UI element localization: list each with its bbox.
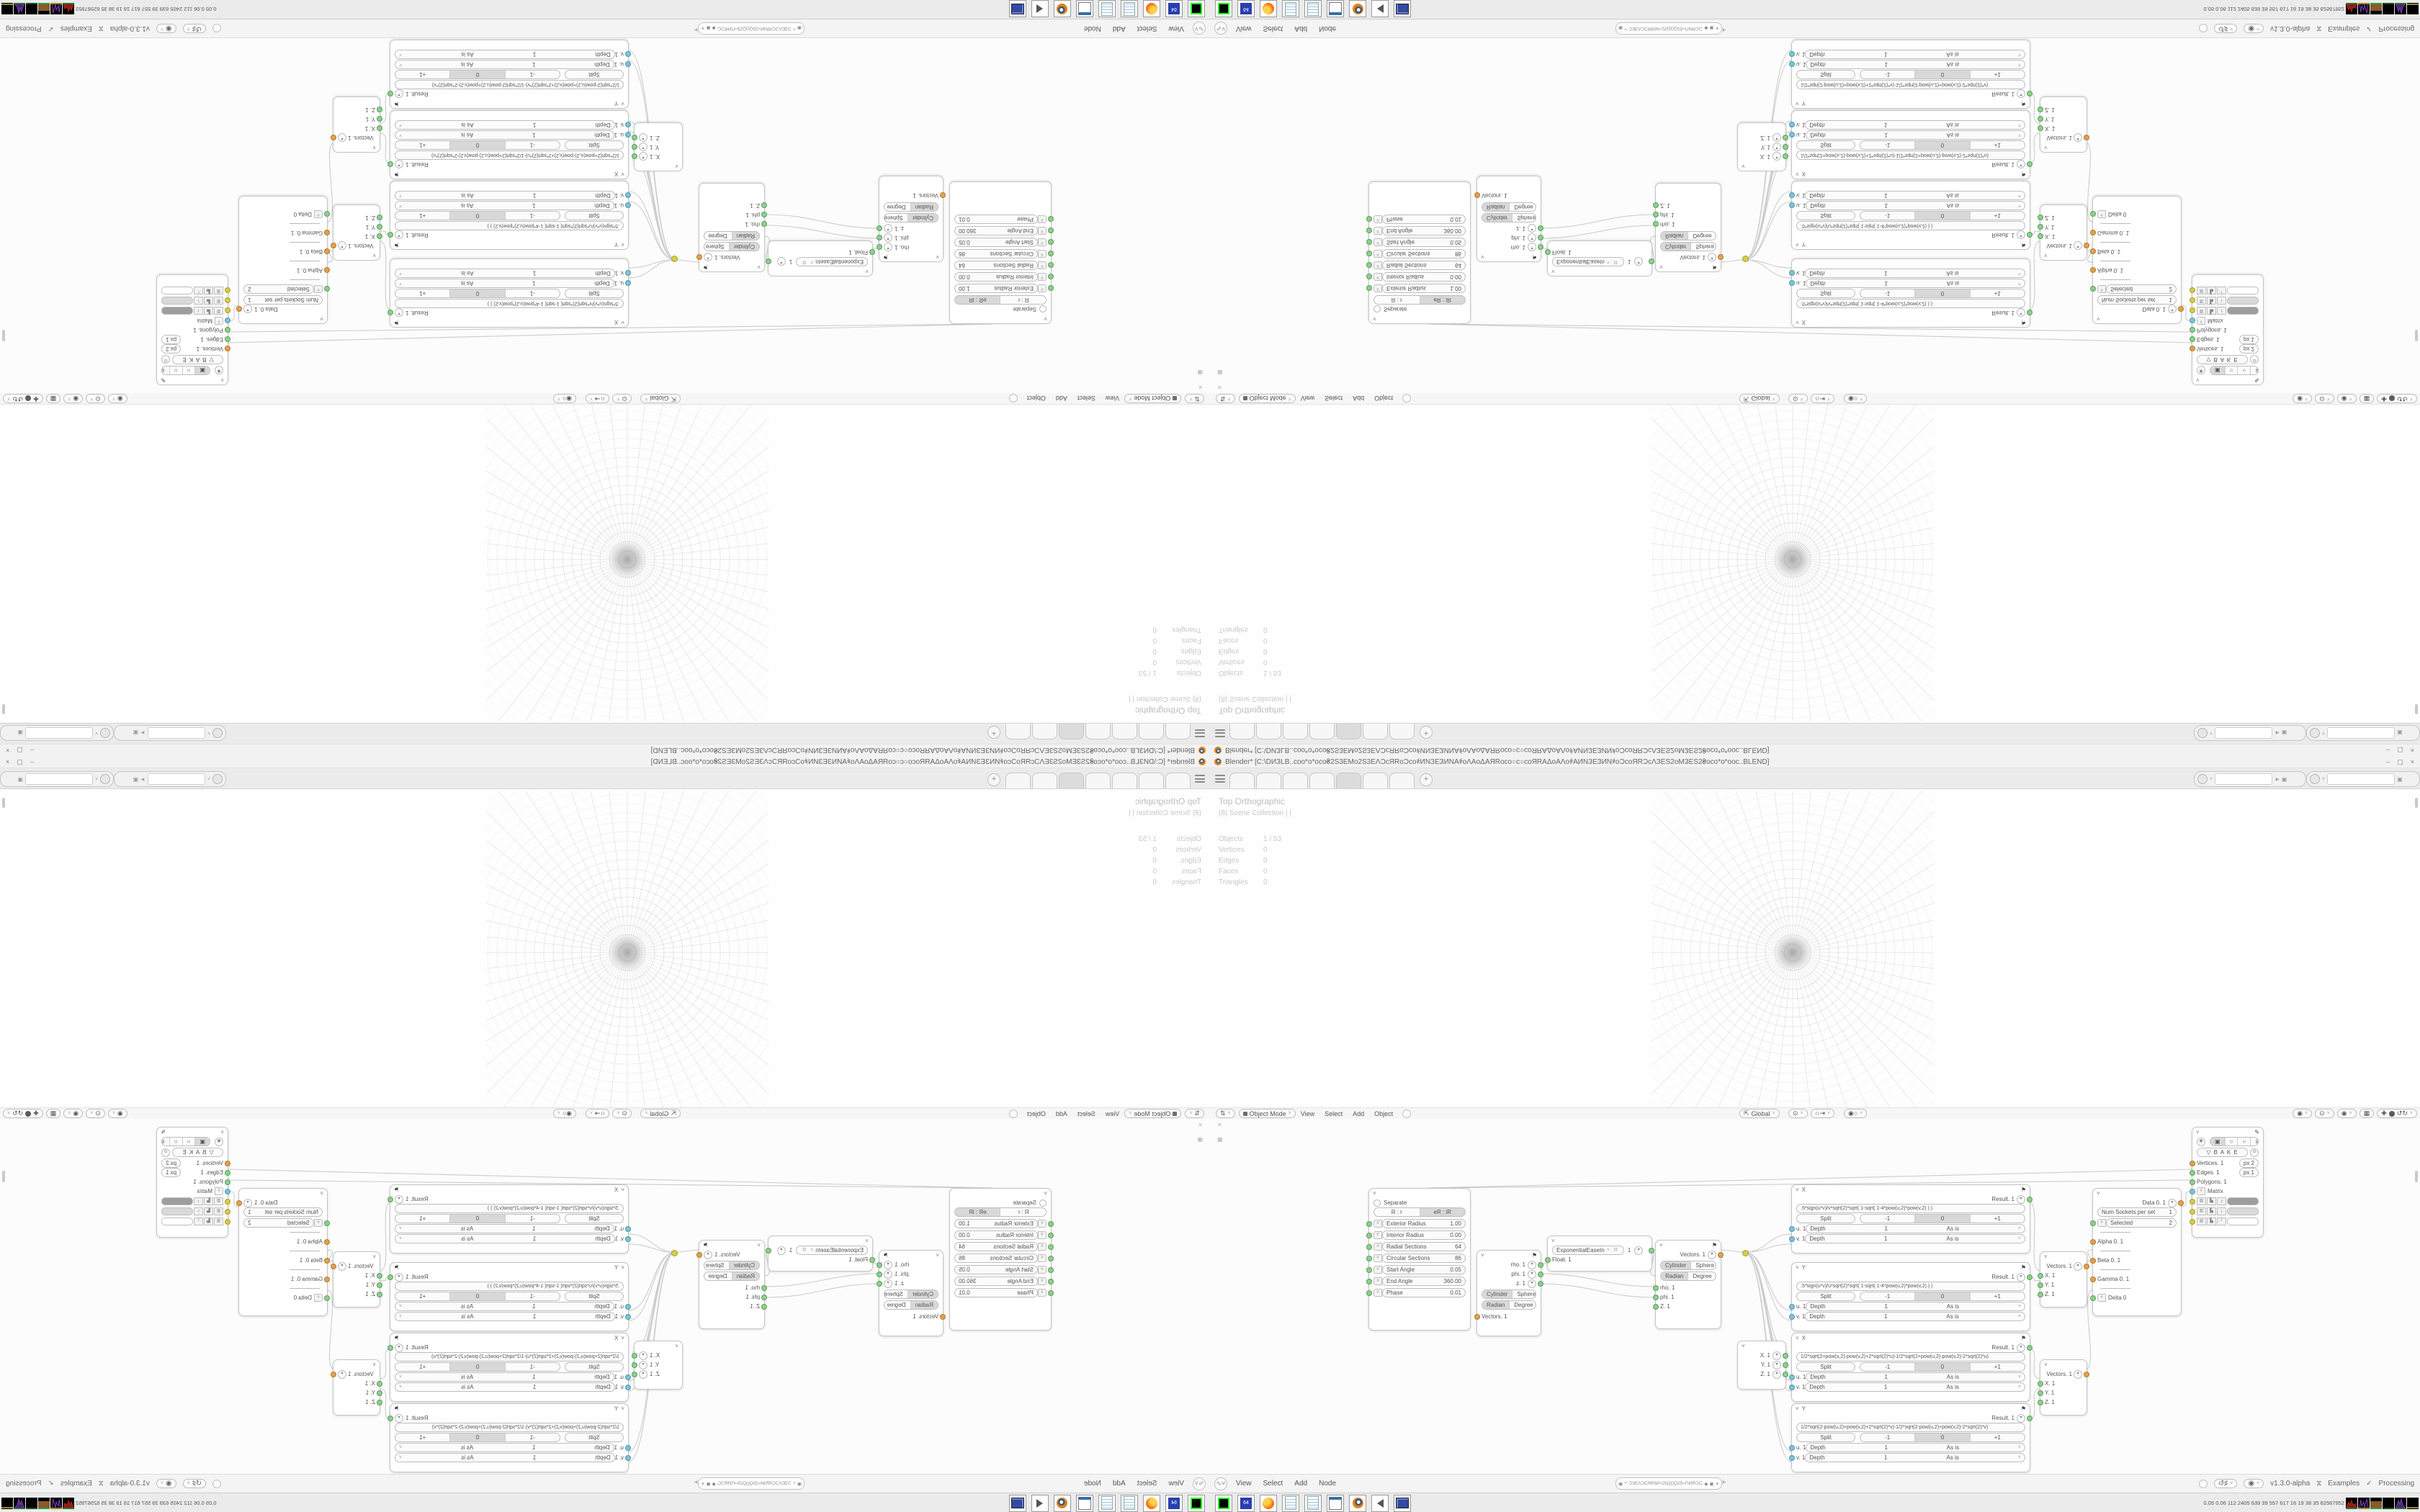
copy-icon[interactable]: ▣ (2282, 776, 2287, 783)
taskbar-app-media[interactable] (1009, 1, 1026, 18)
copy-icon[interactable]: ▣ (1709, 26, 1713, 32)
vector-join-node[interactable]: ˅⚑ Vectors. 1▾ CylinderSphere RadianDegr… (1655, 183, 1721, 272)
separate-checkbox[interactable] (1373, 306, 1381, 313)
formula-input[interactable]: 1/2*sqrt(2+pow(u,2)-pow(v,2)+2*sqrt(2)*u… (395, 1352, 624, 1362)
image-icon[interactable] (100, 774, 110, 784)
formula-input[interactable]: .5*sign(u*v)/u*sqrt(2)*sqrt( 1-sqrt( 1-4… (1796, 1282, 2025, 1291)
data-node[interactable]: ˅ Data 0. 1▾ Num Sockets per set1 #Selec… (2092, 1188, 2182, 1316)
tab-rr[interactable]: R : r (1001, 296, 1047, 304)
shape-cube-toggle[interactable]: ▣ (195, 1138, 210, 1146)
grid-toggle-icon[interactable]: ▦ (1217, 1136, 1223, 1143)
orientation-dropdown[interactable]: ⇱Global˅ (640, 394, 681, 403)
vector-join-node[interactable]: ˅⚑ Vectors. 1▾ CylinderSphere RadianDegr… (1655, 1240, 1721, 1329)
formula-input[interactable]: .5*sign(u*v)/v*sqrt(2)*sqrt( 1-sqrt( 1-4… (1796, 299, 2025, 308)
pin-icon[interactable]: ➤ (1721, 1479, 1726, 1485)
orientation-dropdown[interactable]: ⇱Global˅ (1739, 394, 1780, 403)
grid-button[interactable]: ▦ (46, 1109, 61, 1118)
shape-circle-toggle[interactable]: ○ (2225, 1138, 2238, 1146)
mode-dropdown[interactable]: Object Mode˅ (1239, 1109, 1296, 1118)
magnet-snap-toggle[interactable]: ∩⇥˅ (1811, 394, 1834, 403)
vector-compose-node-1[interactable]: ˅ Vectors. 1▾ X. 1 Y. 1 Z. 1 (333, 204, 380, 261)
tab[interactable] (1139, 724, 1164, 739)
clear-icon[interactable]: ✕ (701, 26, 704, 32)
record-group[interactable]: ◉˅ (2244, 1479, 2264, 1488)
node-editor[interactable]: ✕ ▦ ˅ Separate R : reR : iR #Exterior Ra… (0, 1119, 1210, 1474)
new-tab-button[interactable]: + (1420, 726, 1433, 739)
taskbar-app-media[interactable] (1394, 1, 1411, 18)
tab-active[interactable] (1059, 773, 1084, 788)
menu-add[interactable]: Add (1294, 24, 1307, 32)
tab[interactable] (1165, 773, 1191, 788)
hamburger-menu-icon[interactable] (1195, 775, 1205, 783)
split-button[interactable]: Split (1796, 140, 1855, 150)
examples-link[interactable]: Examples (60, 1480, 92, 1488)
copy-icon[interactable]: ▣ (2282, 730, 2287, 737)
select-tool-dropdown[interactable]: ◉˅ (108, 1109, 127, 1118)
ease-mode-dropdown[interactable]: ExponentialEaseIn˅⊡ (796, 1246, 868, 1255)
pin-icon[interactable]: ➤ (140, 730, 145, 737)
shape-circle-toggle[interactable]: ○ (2225, 366, 2238, 374)
formula-input[interactable]: 1/2*sqrt(2-pow(u,2)+pow(v,2)+2*sqrt(2)*v… (1796, 80, 2025, 89)
shape-off-toggle[interactable]: ⊘ (161, 1138, 170, 1146)
viewport-scrollbar[interactable] (2, 704, 5, 714)
vector-compose-node-1[interactable]: ˅ Vectors. 1▾ X. 1 Y. 1 Z. 1 (333, 1251, 380, 1308)
copy-icon[interactable]: ▣ (133, 730, 139, 737)
formula-node-y2[interactable]: ˅Y⚑ Result. 1▾ 1/2*sqrt(2-pow(u,2)+pow(v… (1791, 1403, 2030, 1472)
menu-view[interactable]: View (1106, 395, 1119, 402)
split-button[interactable]: Split (1796, 289, 1855, 298)
grid-button[interactable]: ▦ (46, 394, 61, 403)
copy-icon[interactable]: ▣ (133, 776, 139, 783)
address-field[interactable]: ▣˅ ƆЗЕΛƆСЯRІИ≈25Ϙ()Ϙ25≈ПИЯƆСΛЗЕƆ ◆ ▣ ✕ (1615, 22, 1722, 35)
formula-input[interactable]: .5*sign(u*v)/u*sqrt(2)*sqrt( 1-sqrt( 1-4… (395, 221, 624, 230)
bake-output-node[interactable]: ˅✎ ◉▣○○⊘ ▽ B A K E⊙ Vertices. 1px 2 Edge… (2192, 274, 2264, 385)
taskbar-app-speaker[interactable] (1031, 1, 1049, 18)
editor-scrollbar[interactable] (2415, 330, 2418, 341)
image-icon[interactable] (100, 728, 110, 738)
xyz-split-node[interactable]: ˅ X. 1▾ Y. 1▾ Z. 1▾ (1737, 122, 1786, 171)
separate-checkbox[interactable] (1373, 1200, 1381, 1207)
formula-node-x2[interactable]: ˅X⚑ Result. 1▾ 1/2*sqrt(2+pow(u,2)-pow(v… (1791, 1333, 2030, 1402)
formula-input[interactable]: 1/2*sqrt(2-pow(u,2)+pow(v,2)+2*sqrt(2)*v… (395, 1423, 624, 1432)
mode-dropdown[interactable]: Object Mode˅ (1124, 394, 1181, 403)
close-button[interactable]: × (6, 758, 9, 766)
exponential-ease-node[interactable]: ˅ ExponentialEaseIn˅⊡1▾ Float. 1 (768, 1236, 873, 1272)
shape-circle2-toggle[interactable]: ○ (170, 1138, 183, 1146)
taskbar-app-media[interactable] (1009, 1495, 1026, 1512)
taskbar-app-notepad-1[interactable] (1282, 1, 1299, 18)
shape-circle-toggle[interactable]: ○ (183, 366, 196, 374)
formula-input[interactable]: 1/2*sqrt(2+pow(u,2)-pow(v,2)+2*sqrt(2)*u… (1796, 150, 2025, 160)
editor-scrollbar[interactable] (2, 1171, 5, 1182)
formula-input[interactable]: 1/2*sqrt(2-pow(u,2)+pow(v,2)+2*sqrt(2)*v… (395, 80, 624, 89)
snap-target-dropdown[interactable]: ⊙˅ (1788, 394, 1808, 403)
taskbar-app-window[interactable] (1327, 1495, 1344, 1512)
taskbar-app-blender[interactable] (1054, 1495, 1071, 1512)
split-button[interactable]: Split (1796, 211, 1855, 220)
tab[interactable] (1112, 773, 1137, 788)
menu-node[interactable]: Node (1084, 1480, 1101, 1488)
copy-icon[interactable]: ▣ (17, 730, 23, 737)
bake-button[interactable]: ▽ B A K E (172, 355, 223, 364)
formula-input[interactable]: .5*sign(u*v)/v*sqrt(2)*sqrt( 1-sqrt( 1-4… (1796, 1204, 2025, 1213)
pin-icon[interactable]: ➤ (140, 776, 145, 783)
hamburger-menu-icon[interactable] (1215, 775, 1225, 783)
proportional-edit-toggle[interactable]: ◉○˅ (1844, 394, 1867, 403)
tab-active[interactable] (1059, 724, 1084, 739)
record-group[interactable]: ◉˅ (156, 1479, 176, 1488)
shape-off-toggle[interactable]: ⊘ (2250, 1138, 2259, 1146)
snap-target-dropdown[interactable]: ⊙˅ (1788, 1109, 1808, 1118)
tab-erir[interactable]: eR : iR (1420, 1208, 1466, 1216)
minimize-button[interactable]: – (30, 747, 34, 755)
shape-cube-toggle[interactable]: ▣ (2210, 1138, 2225, 1146)
split-button[interactable]: Split (1796, 1433, 1855, 1442)
quick-input-2[interactable] (25, 727, 93, 739)
formula-input[interactable]: 1/2*sqrt(2+pow(u,2)-pow(v,2)+2*sqrt(2)*u… (1796, 1352, 2025, 1362)
vector-split-node[interactable]: ˅⚑ rho. 1▾ phi. 1▾ z. 1▾ CylinderSphere … (879, 176, 944, 262)
torus-parameters-node[interactable]: ˅ Separate R : reR : iR #Exterior Radius… (949, 181, 1052, 324)
taskbar-app-console[interactable] (1188, 1, 1205, 18)
exponential-ease-node[interactable]: ˅ ExponentialEaseIn˅⊡1▾ Float. 1 (1547, 1236, 1652, 1272)
tab[interactable] (1283, 724, 1308, 739)
grid-toggle-icon[interactable]: ▦ (1197, 1136, 1203, 1143)
menu-view[interactable]: View (1301, 395, 1314, 402)
close-button[interactable]: × (2411, 747, 2414, 755)
tab-rr[interactable]: R : r (1374, 296, 1420, 304)
gizmo-dropdown[interactable]: ⊙˅ (2315, 1109, 2334, 1118)
grid-toggle-icon[interactable]: ▦ (1217, 369, 1223, 376)
taskbar-app-console[interactable] (1188, 1495, 1205, 1512)
formula-node-y2[interactable]: ˅Y⚑ Result. 1▾ 1/2*sqrt(2-pow(u,2)+pow(v… (1791, 40, 2030, 109)
minimize-button[interactable]: – (2386, 747, 2390, 755)
taskbar-app-notepad-2[interactable] (1098, 1495, 1116, 1512)
menu-node[interactable]: Node (1319, 24, 1336, 32)
quick-input-2[interactable] (2327, 727, 2395, 739)
taskbar-app-notepad-1[interactable] (1121, 1495, 1138, 1512)
split-button[interactable]: Split (565, 140, 624, 150)
ease-mode-dropdown[interactable]: ExponentialEaseIn˅⊡ (796, 257, 868, 266)
taskbar-app-floppy[interactable]: 64 (1165, 1495, 1183, 1512)
formula-input[interactable]: .5*sign(u*v)/u*sqrt(2)*sqrt( 1-sqrt( 1-4… (395, 1282, 624, 1291)
pin-icon[interactable]: ➤ (694, 27, 699, 33)
grid-toggle-icon[interactable]: ▦ (1197, 369, 1203, 376)
header-circle-button[interactable] (1009, 395, 1018, 403)
bake-output-node[interactable]: ˅✎ ◉▣○○⊘ ▽ B A K E⊙ Vertices. 1px 2 Edge… (156, 1127, 228, 1238)
address-text[interactable]: ƆЗЕΛƆСЯRІИ≈25Ϙ()Ϙ25≈ПИЯƆСΛЗЕƆ (717, 26, 792, 31)
taskbar-app-firefox[interactable] (1260, 1, 1277, 18)
address-text[interactable]: ƆЗЕΛƆСЯRІИ≈25Ϙ()Ϙ25≈ПИЯƆСΛЗЕƆ (1628, 26, 1703, 31)
tab[interactable] (1229, 773, 1255, 788)
minimize-button[interactable]: – (30, 758, 34, 766)
proportional-edit-toggle[interactable]: ◉○˅ (1844, 1109, 1867, 1118)
tab-erir[interactable]: eR : iR (955, 296, 1001, 304)
split-button[interactable]: Split (565, 1362, 624, 1372)
gizmo-dropdown[interactable]: ⊙˅ (86, 1109, 105, 1118)
viewport-3d[interactable]: Top Orthographic (8) Scene Collection | … (0, 405, 1210, 723)
header-circle-button[interactable] (1402, 1110, 1411, 1118)
overlay-dropdown[interactable]: ◉˅ (2337, 1109, 2357, 1118)
taskbar-app-floppy[interactable]: 64 (1165, 1, 1183, 18)
reroute-dot[interactable] (671, 256, 678, 262)
bake-button[interactable]: ▽ B A K E (2197, 1148, 2248, 1157)
vector-compose-node-1[interactable]: ˅ Vectors. 1▾ X. 1 Y. 1 Z. 1 (2040, 204, 2087, 261)
menu-add[interactable]: Add (1353, 395, 1364, 402)
shape-cube-toggle[interactable]: ▣ (195, 366, 210, 374)
maximize-button[interactable]: ▢ (17, 758, 23, 766)
tab[interactable] (1309, 773, 1335, 788)
split-button[interactable]: Split (565, 211, 624, 220)
formula-node-y2[interactable]: ˅Y⚑ Result. 1▾ 1/2*sqrt(2-pow(u,2)+pow(v… (390, 1403, 629, 1472)
overlay-dropdown[interactable]: ◉˅ (63, 394, 83, 403)
vector-compose-node-1[interactable]: ˅ Vectors. 1▾ X. 1 Y. 1 Z. 1 (2040, 1251, 2087, 1308)
node-editor-icon[interactable]: ∿˅ (1193, 1477, 1206, 1490)
quick-input-1[interactable] (148, 727, 205, 739)
taskbar-app-window[interactable] (1076, 1, 1093, 18)
editor-type-dropdown[interactable]: ⇅˅ (1185, 1109, 1204, 1118)
copy-icon[interactable]: ▣ (2397, 730, 2403, 737)
tab[interactable] (1229, 724, 1255, 739)
cursor-icon[interactable] (2197, 728, 2208, 738)
taskbar-app-notepad-1[interactable] (1282, 1495, 1299, 1512)
address-field[interactable]: ▣˅ ƆЗЕΛƆСЯRІИ≈25Ϙ()Ϙ25≈ПИЯƆСΛЗЕƆ ◆ ▣ ✕ (1615, 1477, 1722, 1490)
copy-icon[interactable]: ▣ (17, 776, 23, 783)
vector-join-node[interactable]: ˅⚑ Vectors. 1▾ CylinderSphere RadianDegr… (699, 183, 765, 272)
address-field[interactable]: ▣˅ ƆЗЕΛƆСЯRІИ≈25Ϙ()Ϙ25≈ПИЯƆСΛЗЕƆ ◆ ▣ ✕ (698, 22, 805, 35)
split-button[interactable]: Split (1796, 1292, 1855, 1301)
shield-icon[interactable]: ◆ (1704, 26, 1708, 32)
address-text[interactable]: ƆЗЕΛƆСЯRІИ≈25Ϙ()Ϙ25≈ПИЯƆСΛЗЕƆ (717, 1481, 792, 1486)
menu-select[interactable]: Select (1263, 1480, 1283, 1488)
pin-icon[interactable]: ➤ (2275, 730, 2280, 737)
ease-mode-dropdown[interactable]: ExponentialEaseIn˅⊡ (1552, 257, 1624, 266)
editor-type-dropdown[interactable]: ⇅˅ (1216, 1109, 1235, 1118)
status-circle[interactable] (212, 24, 221, 33)
tab[interactable] (1005, 724, 1031, 739)
taskbar-app-speaker[interactable] (1371, 1, 1389, 18)
data-node[interactable]: ˅ Data 0. 1▾ Num Sockets per set1 #Selec… (2092, 196, 2182, 324)
hamburger-menu-icon[interactable] (1215, 729, 1225, 737)
copy-icon[interactable]: ▣ (706, 1481, 710, 1487)
shading-group[interactable]: ✚↺↻˅ (3, 1109, 43, 1118)
taskbar-app-blender[interactable] (1349, 1, 1366, 18)
hamburger-menu-icon[interactable] (1195, 729, 1205, 737)
shading-group[interactable]: ✚↺↻˅ (2377, 394, 2417, 403)
image-icon[interactable] (2310, 774, 2320, 784)
taskbar-app-floppy[interactable]: 64 (1237, 1495, 1255, 1512)
status-circle[interactable] (212, 1480, 221, 1488)
select-tool-dropdown[interactable]: ◉˅ (108, 394, 127, 403)
reroute-dot[interactable] (671, 1250, 678, 1256)
xyz-split-node[interactable]: ˅ X. 1▾ Y. 1▾ Z. 1▾ (634, 1341, 683, 1390)
overlay-dropdown[interactable]: ◉˅ (2337, 394, 2357, 403)
examples-link[interactable]: Examples (2328, 1480, 2359, 1488)
formula-node-x1[interactable]: ˅X⚑ Result. 1▾ .5*sign(u*v)/v*sqrt(2)*sq… (1791, 258, 2030, 328)
formula-node-y2[interactable]: ˅Y⚑ Result. 1▾ 1/2*sqrt(2-pow(u,2)+pow(v… (390, 40, 629, 109)
minimize-button[interactable]: – (2386, 758, 2390, 766)
vector-split-node[interactable]: ˅⚑ rho. 1▾ phi. 1▾ z. 1▾ CylinderSphere … (1476, 176, 1541, 262)
taskbar-app-firefox[interactable] (1143, 1495, 1160, 1512)
gizmo-dropdown[interactable]: ⊙˅ (86, 394, 105, 403)
header-circle-button[interactable] (1009, 1110, 1018, 1118)
taskbar-app-window[interactable] (1076, 1495, 1093, 1512)
close-button[interactable]: × (2411, 758, 2414, 766)
menu-view[interactable]: View (1236, 24, 1252, 32)
tab[interactable] (1085, 724, 1111, 739)
menu-add[interactable]: Add (1294, 1480, 1307, 1488)
menu-view[interactable]: View (1169, 1480, 1185, 1488)
shield-icon[interactable]: ◆ (712, 26, 716, 32)
copy-icon[interactable]: ▣ (1709, 1481, 1713, 1487)
exponential-ease-node[interactable]: ˅ ExponentialEaseIn˅⊡1▾ Float. 1 (1547, 240, 1652, 276)
shape-cube-toggle[interactable]: ▣ (2210, 366, 2225, 374)
magnet-snap-toggle[interactable]: ∩⇥˅ (586, 1109, 609, 1118)
reroute-dot[interactable] (1742, 1250, 1749, 1256)
clear-icon[interactable]: ✕ (1716, 1481, 1719, 1487)
bake-output-node[interactable]: ˅✎ ◉▣○○⊘ ▽ B A K E⊙ Vertices. 1px 2 Edge… (2192, 1127, 2264, 1238)
tab[interactable] (1363, 724, 1388, 739)
viewport-3d[interactable]: Top Orthographic (8) Scene Collection | … (1210, 405, 2420, 723)
cursor-icon[interactable] (212, 728, 223, 738)
tab[interactable] (1032, 773, 1057, 788)
viewport-scrollbar[interactable] (2, 798, 5, 808)
proportional-edit-toggle[interactable]: ◉○˅ (553, 394, 576, 403)
mode-dropdown[interactable]: Object Mode˅ (1239, 394, 1296, 403)
formula-node-y1[interactable]: ˅Y⚑ Result. 1▾ .5*sign(u*v)/u*sqrt(2)*sq… (390, 181, 629, 250)
status-circle[interactable] (2199, 1480, 2208, 1488)
split-button[interactable]: Split (565, 289, 624, 298)
tab-active[interactable] (1336, 724, 1361, 739)
menu-select[interactable]: Select (1077, 1110, 1095, 1117)
node-editor[interactable]: ✕ ▦ ˅ Separate R : reR : iR #Exterior Ra… (1210, 1119, 2420, 1474)
snap-target-dropdown[interactable]: ⊙˅ (612, 394, 632, 403)
close-icon[interactable]: ✕ (1217, 1122, 1222, 1128)
split-button[interactable]: Split (565, 1292, 624, 1301)
select-tool-dropdown[interactable]: ◉˅ (2293, 1109, 2312, 1118)
taskbar-app-window[interactable] (1327, 1, 1344, 18)
close-icon[interactable]: ✕ (1217, 384, 1222, 390)
tab[interactable] (1112, 724, 1137, 739)
magnet-snap-toggle[interactable]: ∩⇥˅ (586, 394, 609, 403)
gizmo-dropdown[interactable]: ⊙˅ (2315, 394, 2334, 403)
split-button[interactable]: Split (1796, 70, 1855, 79)
taskbar-app-speaker[interactable] (1031, 1495, 1049, 1512)
vector-split-node[interactable]: ˅⚑ rho. 1▾ phi. 1▾ z. 1▾ CylinderSphere … (879, 1250, 944, 1336)
split-button[interactable]: Split (565, 1214, 624, 1223)
record-group[interactable]: ◉˅ (2244, 24, 2264, 33)
taskbar-app-console[interactable] (1215, 1495, 1232, 1512)
xyz-split-node[interactable]: ˅ X. 1▾ Y. 1▾ Z. 1▾ (634, 122, 683, 171)
refresh-group[interactable]: ↺♯˅ (2214, 1479, 2237, 1488)
formula-input[interactable]: .5*sign(u*v)/v*sqrt(2)*sqrt( 1-sqrt( 1-4… (395, 1204, 624, 1213)
menu-view[interactable]: View (1169, 24, 1185, 32)
taskbar-app-floppy[interactable]: 64 (1237, 1, 1255, 18)
vector-compose-node-2[interactable]: ˅ Vectors. 1▾ X. 1 Y. 1 Z. 1 (2040, 96, 2087, 153)
menu-view[interactable]: View (1106, 1110, 1119, 1117)
editor-scrollbar[interactable] (2, 330, 5, 341)
close-icon[interactable]: ✕ (1198, 384, 1203, 390)
editor-scrollbar[interactable] (2415, 1171, 2418, 1182)
copy-icon[interactable]: ▣ (2397, 776, 2403, 783)
tab[interactable] (1032, 724, 1057, 739)
refresh-group[interactable]: ↺♯˅ (183, 24, 206, 33)
address-field[interactable]: ▣˅ ƆЗЕΛƆСЯRІИ≈25Ϙ()Ϙ25≈ПИЯƆСΛЗЕƆ ◆ ▣ ✕ (698, 1477, 805, 1490)
menu-object[interactable]: Object (1027, 395, 1046, 402)
editor-type-dropdown[interactable]: ⇅˅ (1216, 394, 1235, 403)
record-group[interactable]: ◉˅ (156, 24, 176, 33)
tab-erir[interactable]: eR : iR (1420, 296, 1466, 304)
address-text[interactable]: ƆЗЕΛƆСЯRІИ≈25Ϙ()Ϙ25≈ПИЯƆСΛЗЕƆ (1628, 1481, 1703, 1486)
formula-node-x2[interactable]: ˅X⚑ Result. 1▾ 1/2*sqrt(2+pow(u,2)-pow(v… (390, 1333, 629, 1402)
vector-join-node[interactable]: ˅⚑ Vectors. 1▾ CylinderSphere RadianDegr… (699, 1240, 765, 1329)
pin-icon[interactable]: ➤ (694, 1479, 699, 1485)
formula-node-x2[interactable]: ˅X⚑ Result. 1▾ 1/2*sqrt(2+pow(u,2)-pow(v… (1791, 110, 2030, 179)
orientation-dropdown[interactable]: ⇱Global˅ (640, 1109, 681, 1118)
split-button[interactable]: Split (1796, 1362, 1855, 1372)
menu-select[interactable]: Select (1325, 395, 1343, 402)
snap-target-dropdown[interactable]: ⊙˅ (612, 1109, 632, 1118)
quick-input-1[interactable] (2215, 727, 2272, 739)
formula-node-y1[interactable]: ˅Y⚑ Result. 1▾ .5*sign(u*v)/u*sqrt(2)*sq… (1791, 181, 2030, 250)
formula-input[interactable]: .5*sign(u*v)/v*sqrt(2)*sqrt( 1-sqrt( 1-4… (395, 299, 624, 308)
maximize-button[interactable]: ▢ (17, 747, 23, 755)
pin-icon[interactable]: ➤ (1721, 27, 1726, 33)
vector-compose-node-2[interactable]: ˅ Vectors. 1▾ X. 1 Y. 1 Z. 1 (333, 96, 380, 153)
menu-select[interactable]: Select (1137, 24, 1157, 32)
header-circle-button[interactable] (1402, 395, 1411, 403)
tab-rr[interactable]: R : r (1001, 1208, 1047, 1216)
taskbar-app-notepad-2[interactable] (1304, 1, 1322, 18)
menu-node[interactable]: Node (1084, 24, 1101, 32)
tab[interactable] (1363, 773, 1388, 788)
menu-object[interactable]: Object (1374, 1110, 1393, 1117)
overlay-dropdown[interactable]: ◉˅ (63, 1109, 83, 1118)
grid-button[interactable]: ▦ (2359, 1109, 2375, 1118)
vector-split-node[interactable]: ˅⚑ rho. 1▾ phi. 1▾ z. 1▾ CylinderSphere … (1476, 1250, 1541, 1336)
examples-link[interactable]: Examples (2328, 24, 2359, 32)
menu-select[interactable]: Select (1077, 395, 1095, 402)
data-node[interactable]: ˅ Data 0. 1▾ Num Sockets per set1 #Selec… (238, 1188, 328, 1316)
menu-select[interactable]: Select (1263, 24, 1283, 32)
formula-node-x1[interactable]: ˅X⚑ Result. 1▾ .5*sign(u*v)/v*sqrt(2)*sq… (390, 1184, 629, 1254)
taskbar-app-notepad-2[interactable] (1304, 1495, 1322, 1512)
new-tab-button[interactable]: + (1420, 773, 1433, 786)
mode-dropdown[interactable]: Object Mode˅ (1124, 1109, 1181, 1118)
taskbar-app-blender[interactable] (1349, 1495, 1366, 1512)
tab[interactable] (1283, 773, 1308, 788)
menu-add[interactable]: Add (1353, 1110, 1364, 1117)
torus-parameters-node[interactable]: ˅ Separate R : reR : iR #Exterior Radius… (949, 1188, 1052, 1331)
grid-button[interactable]: ▦ (2359, 394, 2375, 403)
ease-mode-dropdown[interactable]: ExponentialEaseIn˅⊡ (1552, 1246, 1624, 1255)
taskbar-app-blender[interactable] (1054, 1, 1071, 18)
viewport-scrollbar[interactable] (2415, 798, 2418, 808)
exponential-ease-node[interactable]: ˅ ExponentialEaseIn˅⊡1▾ Float. 1 (768, 240, 873, 276)
vector-compose-node-2[interactable]: ˅ Vectors. 1▾ X. 1 Y. 1 Z. 1 (2040, 1359, 2087, 1416)
shape-off-toggle[interactable]: ⊘ (161, 366, 170, 374)
tab[interactable] (1309, 724, 1335, 739)
tab[interactable] (1085, 773, 1111, 788)
formula-node-y1[interactable]: ˅Y⚑ Result. 1▾ .5*sign(u*v)/u*sqrt(2)*sq… (390, 1262, 629, 1331)
taskbar-app-firefox[interactable] (1143, 1, 1160, 18)
bake-button[interactable]: ▽ B A K E (2197, 355, 2248, 364)
cursor-icon[interactable] (2197, 774, 2208, 784)
shape-circle2-toggle[interactable]: ○ (170, 366, 183, 374)
taskbar-app-speaker[interactable] (1371, 1495, 1389, 1512)
shape-circle2-toggle[interactable]: ○ (2237, 1138, 2250, 1146)
examples-link[interactable]: Examples (60, 24, 92, 32)
shape-circle2-toggle[interactable]: ○ (2237, 366, 2250, 374)
